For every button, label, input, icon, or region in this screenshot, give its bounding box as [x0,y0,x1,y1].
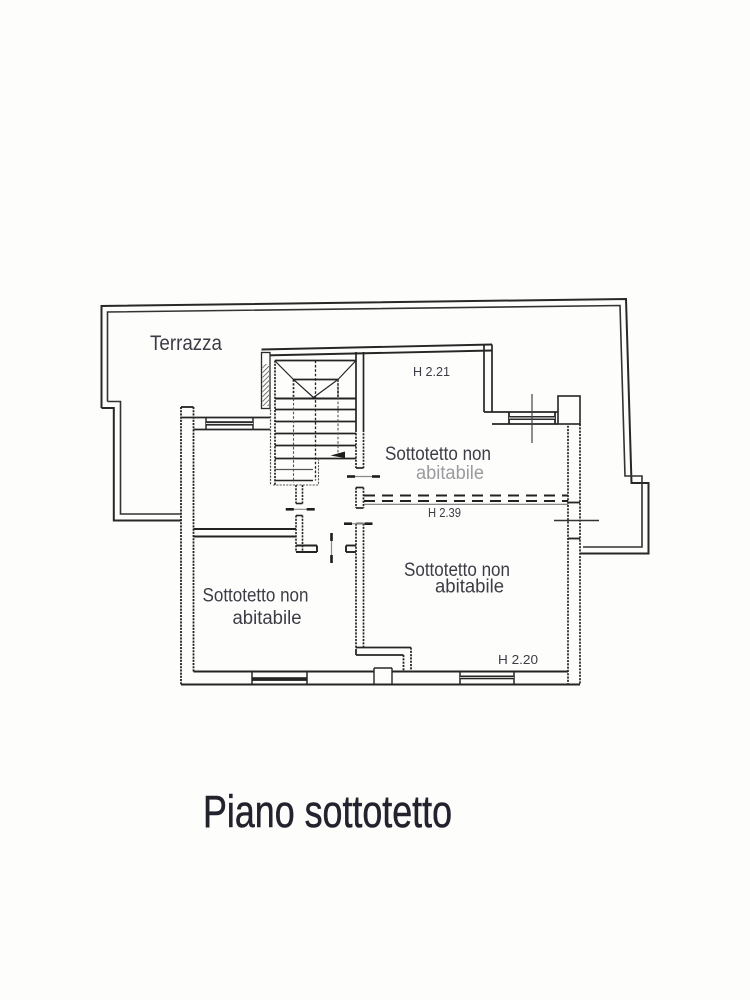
svg-text:H 2.39: H 2.39 [428,506,461,520]
svg-text:abitabile: abitabile [435,577,504,598]
svg-text:Piano sottotetto: Piano sottotetto [203,786,452,837]
svg-text:H 2.21: H 2.21 [413,364,450,379]
svg-text:abitabile: abitabile [233,608,302,629]
svg-text:H 2.20: H 2.20 [498,652,538,667]
svg-text:Sottotetto non: Sottotetto non [385,444,491,465]
svg-text:Terrazza: Terrazza [150,332,222,355]
svg-text:abitabile: abitabile [416,463,484,484]
svg-text:Sottotetto non: Sottotetto non [203,586,309,607]
